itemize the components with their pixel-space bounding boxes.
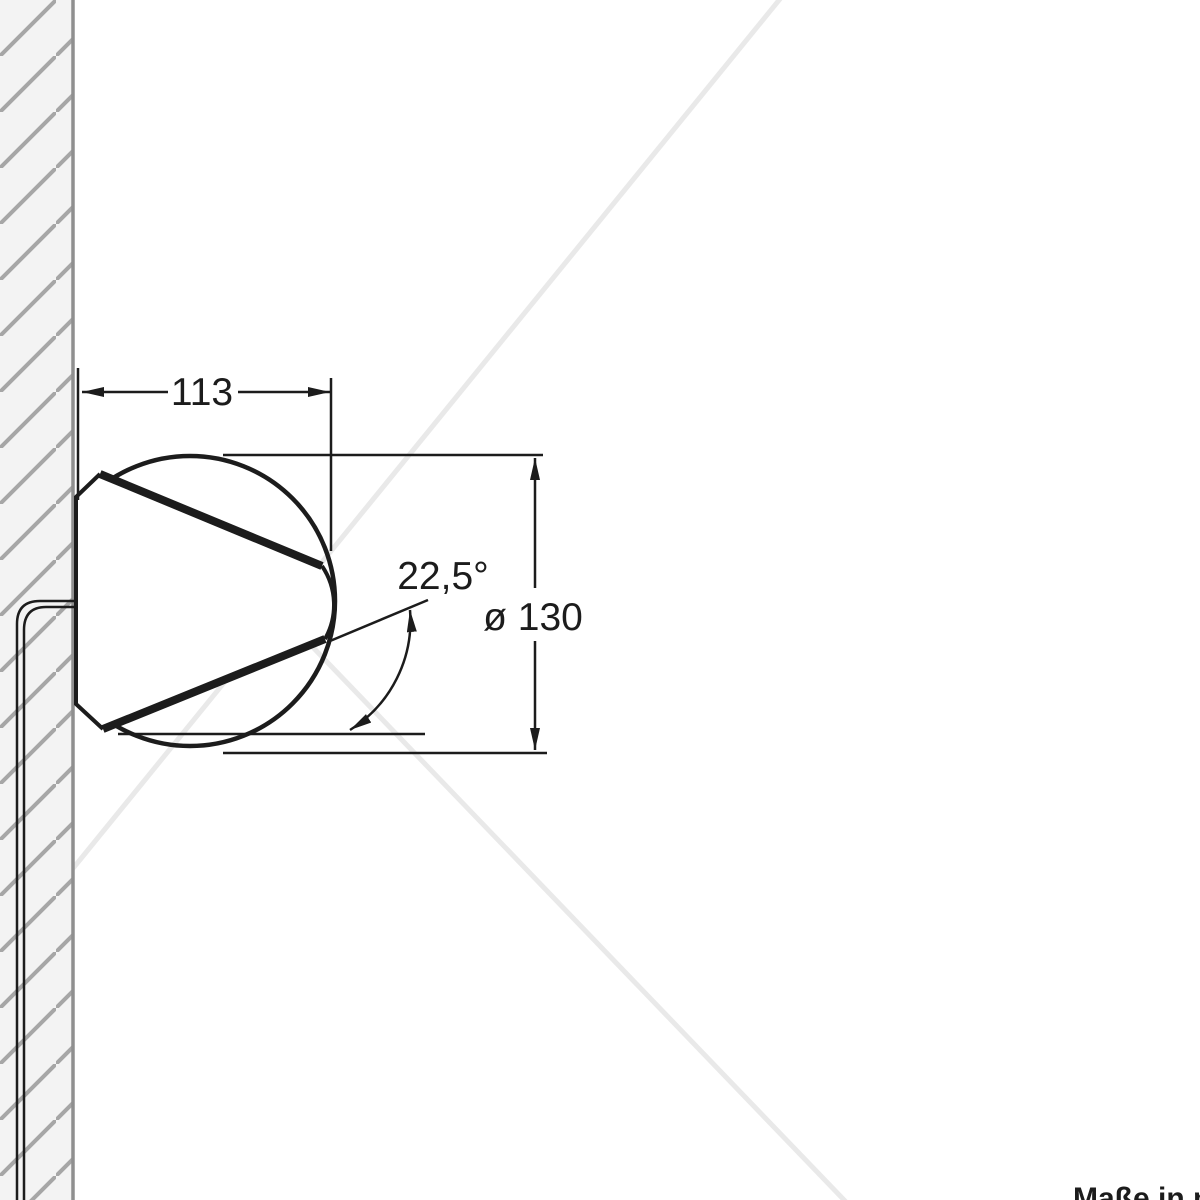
drawing-canvas: 113 ø 130 22,5° Maße in mm	[0, 0, 1200, 1200]
diameter-dimension-label: ø 130	[483, 596, 583, 639]
technical-drawing: 113 ø 130 22,5° Maße in mm	[0, 0, 1200, 1200]
width-dimension-label: 113	[171, 371, 233, 414]
units-note: Maße in mm	[1073, 1182, 1200, 1200]
angle-dimension-label: 22,5°	[397, 555, 489, 598]
